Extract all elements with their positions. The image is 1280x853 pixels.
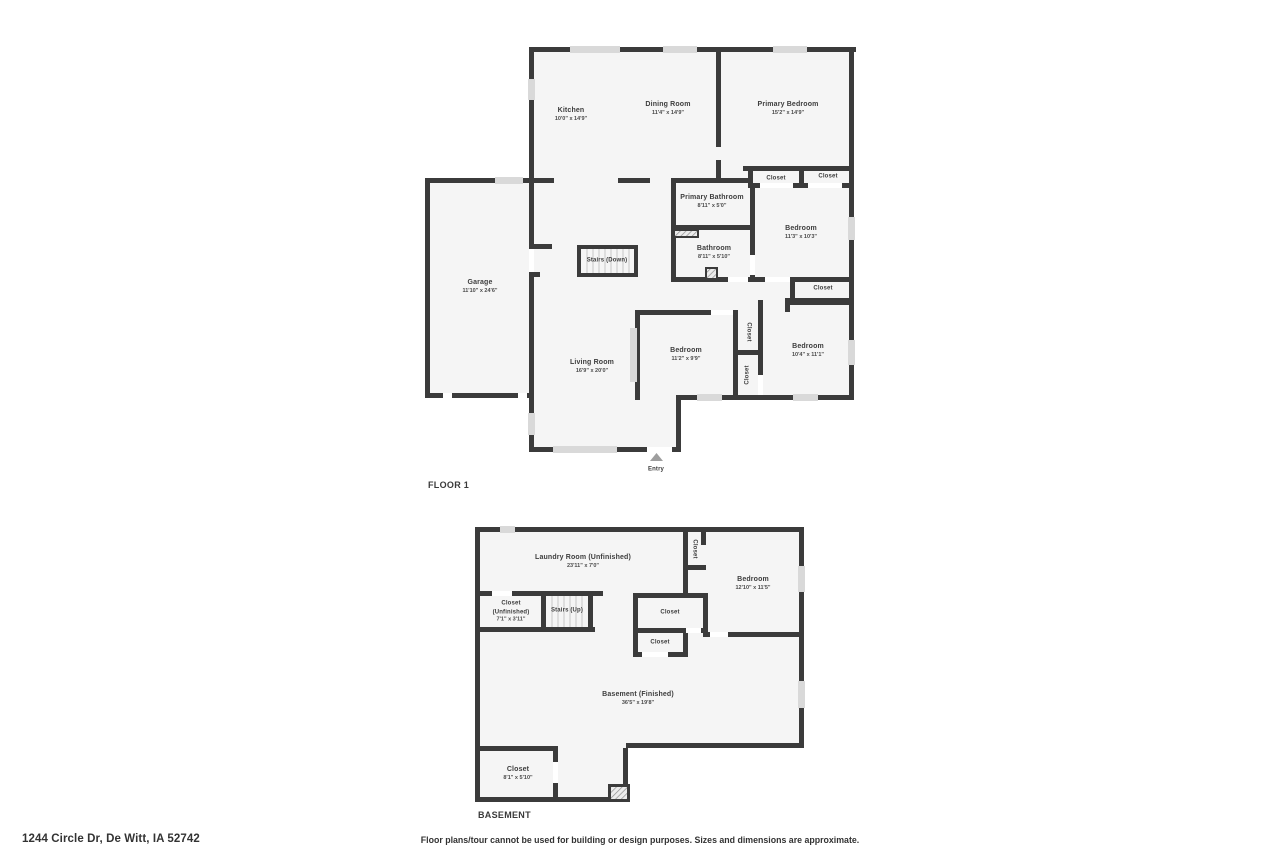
room-label-closet-2: Closet [818,173,837,182]
disclaimer-text: Floor plans/tour cannot be used for buil… [421,835,859,845]
room-label-garage: Garage 11'10" x 24'6" [462,278,497,296]
room-label-primary-bathroom: Primary Bathroom 8'11" x 5'0" [680,193,743,211]
room-label-stairs-down: Stairs (Down) [587,257,628,266]
room-label-stairs-up: Stairs (Up) [551,607,583,616]
room-label-laundry-room: Laundry Room (Unfinished) 23'11" x 7'0" [535,553,631,571]
room-label-closet-v2: Closet [744,365,753,384]
room-label-living-room: Living Room 16'9" x 20'0" [570,358,614,376]
room-label-closet-basement-v: Closet [690,539,699,558]
floorplan-page: Kitchen 10'0" x 14'9" Dining Room 11'4" … [0,0,1280,853]
floorplan-canvas [0,0,1280,853]
room-label-basement-bedroom: Bedroom 12'10" x 11'5" [735,575,770,593]
room-label-closet-3: Closet [813,285,832,294]
room-label-closet-small: Closet [650,639,669,648]
room-label-closet-mid: Closet [660,609,679,618]
room-label-primary-bedroom: Primary Bedroom 15'2" x 14'9" [758,100,819,118]
basement-room-fill [477,529,803,802]
basement-title: BASEMENT [478,810,531,820]
floor1-title: FLOOR 1 [428,480,469,490]
room-label-closet-sw: Closet 8'1" x 5'10" [503,765,532,783]
room-label-kitchen: Kitchen 10'0" x 14'9" [555,106,587,124]
room-label-bathroom: Bathroom 8'11" x 5'10" [697,244,731,262]
room-label-closet-1: Closet [766,175,785,184]
room-label-dining-room: Dining Room 11'4" x 14'9" [645,100,690,118]
room-label-closet-unfinished: Closet (Unfinished) 7'1" x 3'11" [493,599,530,624]
entry-arrow-icon [650,453,663,461]
property-address: 1244 Circle Dr, De Witt, IA 52742 [22,833,200,845]
room-label-closet-v1: Closet [744,322,753,341]
room-label-bedroom-se: Bedroom 10'4" x 11'1" [792,342,824,360]
room-label-bedroom-mid: Bedroom 11'2" x 9'9" [670,346,702,364]
basement-utility-hatch [611,787,627,799]
room-label-bedroom-ne: Bedroom 11'3" x 10'3" [785,224,817,242]
entry-label: Entry [648,466,664,475]
room-label-basement-finished: Basement (Finished) 36'5" x 19'8" [602,690,674,708]
